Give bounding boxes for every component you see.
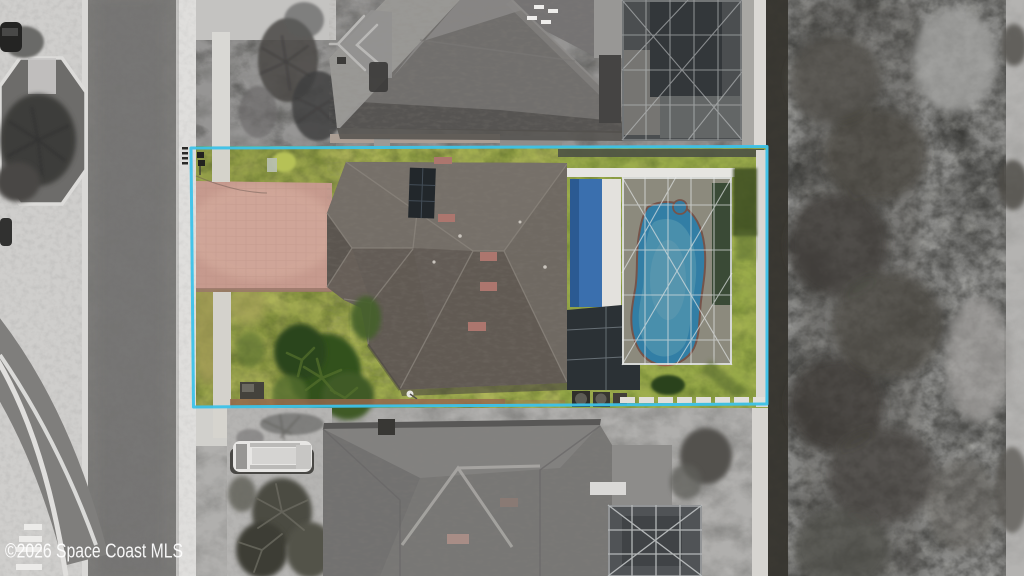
svg-text:©2026 Space Coast MLS: ©2026 Space Coast MLS [5, 541, 183, 563]
